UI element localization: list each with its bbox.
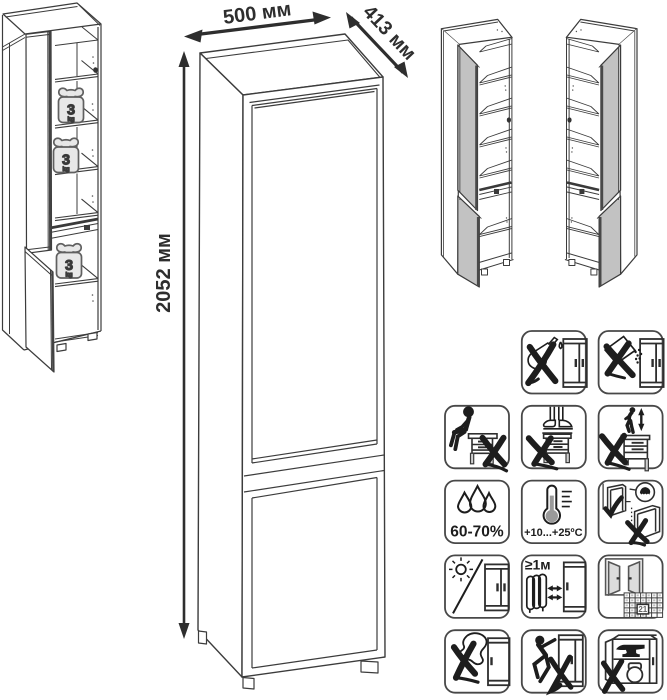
svg-text:kg: kg [67,117,74,123]
svg-text:≥1м: ≥1м [525,556,551,572]
svg-text:kg: kg [65,273,72,279]
svg-text:21: 21 [638,605,647,614]
svg-text:kg: kg [62,167,69,173]
svg-text:60-70%: 60-70% [450,524,504,541]
svg-text:2052 мм: 2052 мм [153,233,175,313]
svg-text:+10...+25ºC: +10...+25ºC [524,527,583,539]
